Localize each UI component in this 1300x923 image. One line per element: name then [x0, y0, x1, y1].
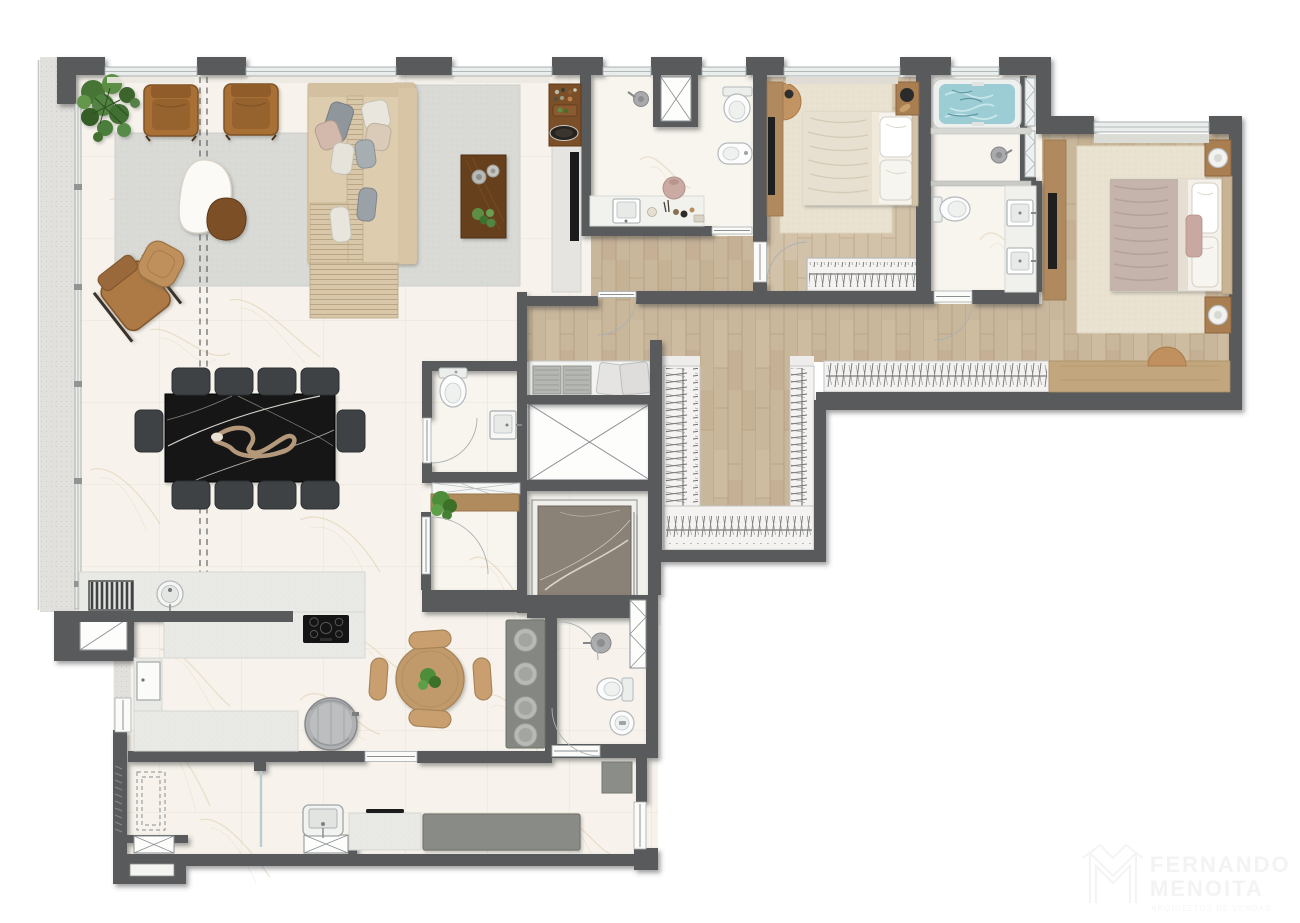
svg-text:FERNANDO: FERNANDO [1150, 852, 1291, 877]
svg-text:MENOITA: MENOITA [1150, 876, 1264, 901]
svg-text:ARQUITETOS DE VENDAS: ARQUITETOS DE VENDAS [1151, 904, 1271, 913]
